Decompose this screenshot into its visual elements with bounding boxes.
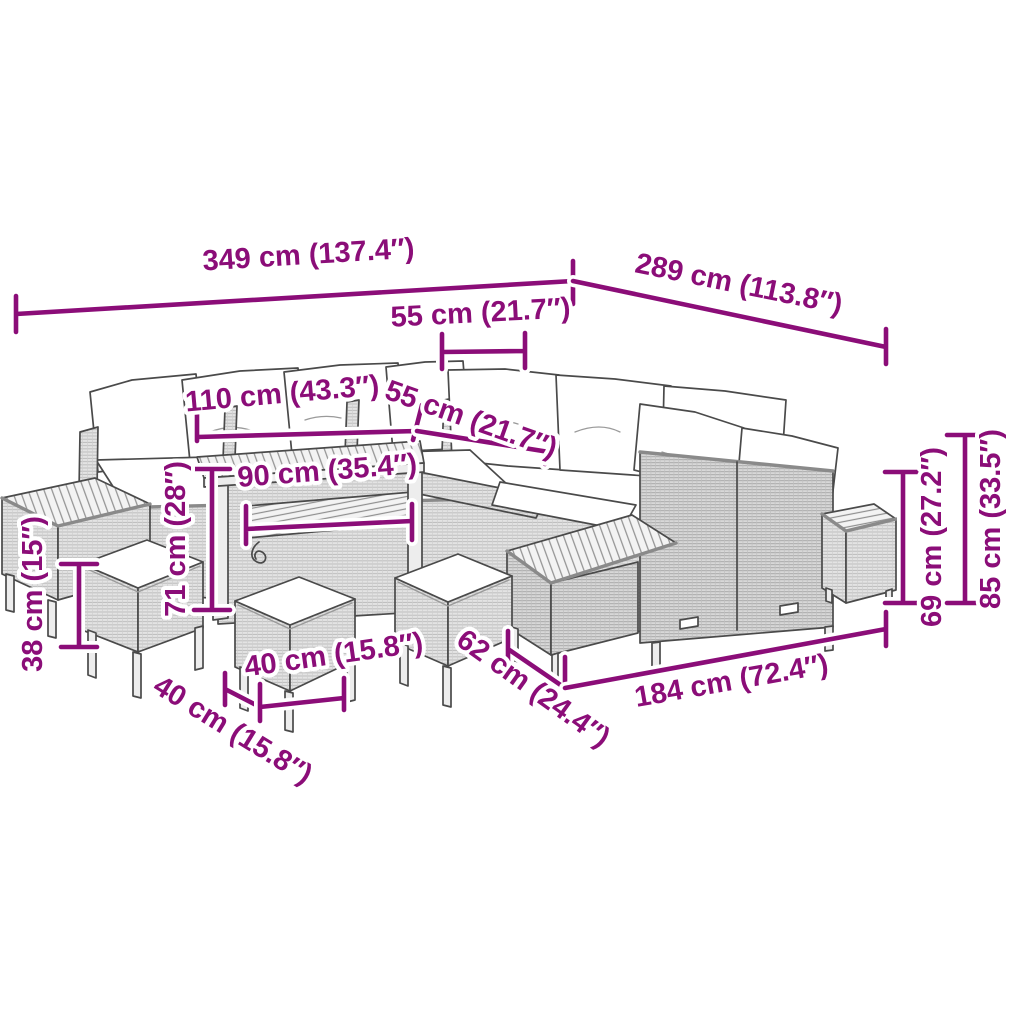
dim-stool-height-label: 38 cm (15″) — [17, 516, 49, 672]
right-side-table — [822, 504, 896, 604]
dim-overall-height-label: 85 cm (33.5″) — [975, 429, 1007, 609]
dim-table-height-label: 71 cm (28″) — [160, 461, 192, 617]
dimension-diagram: 349 cm (137.4″) 289 cm (113.8″) 55 cm (2… — [0, 0, 1024, 1024]
diagram-canvas: 349 cm (137.4″) 289 cm (113.8″) 55 cm (2… — [0, 0, 1024, 1024]
